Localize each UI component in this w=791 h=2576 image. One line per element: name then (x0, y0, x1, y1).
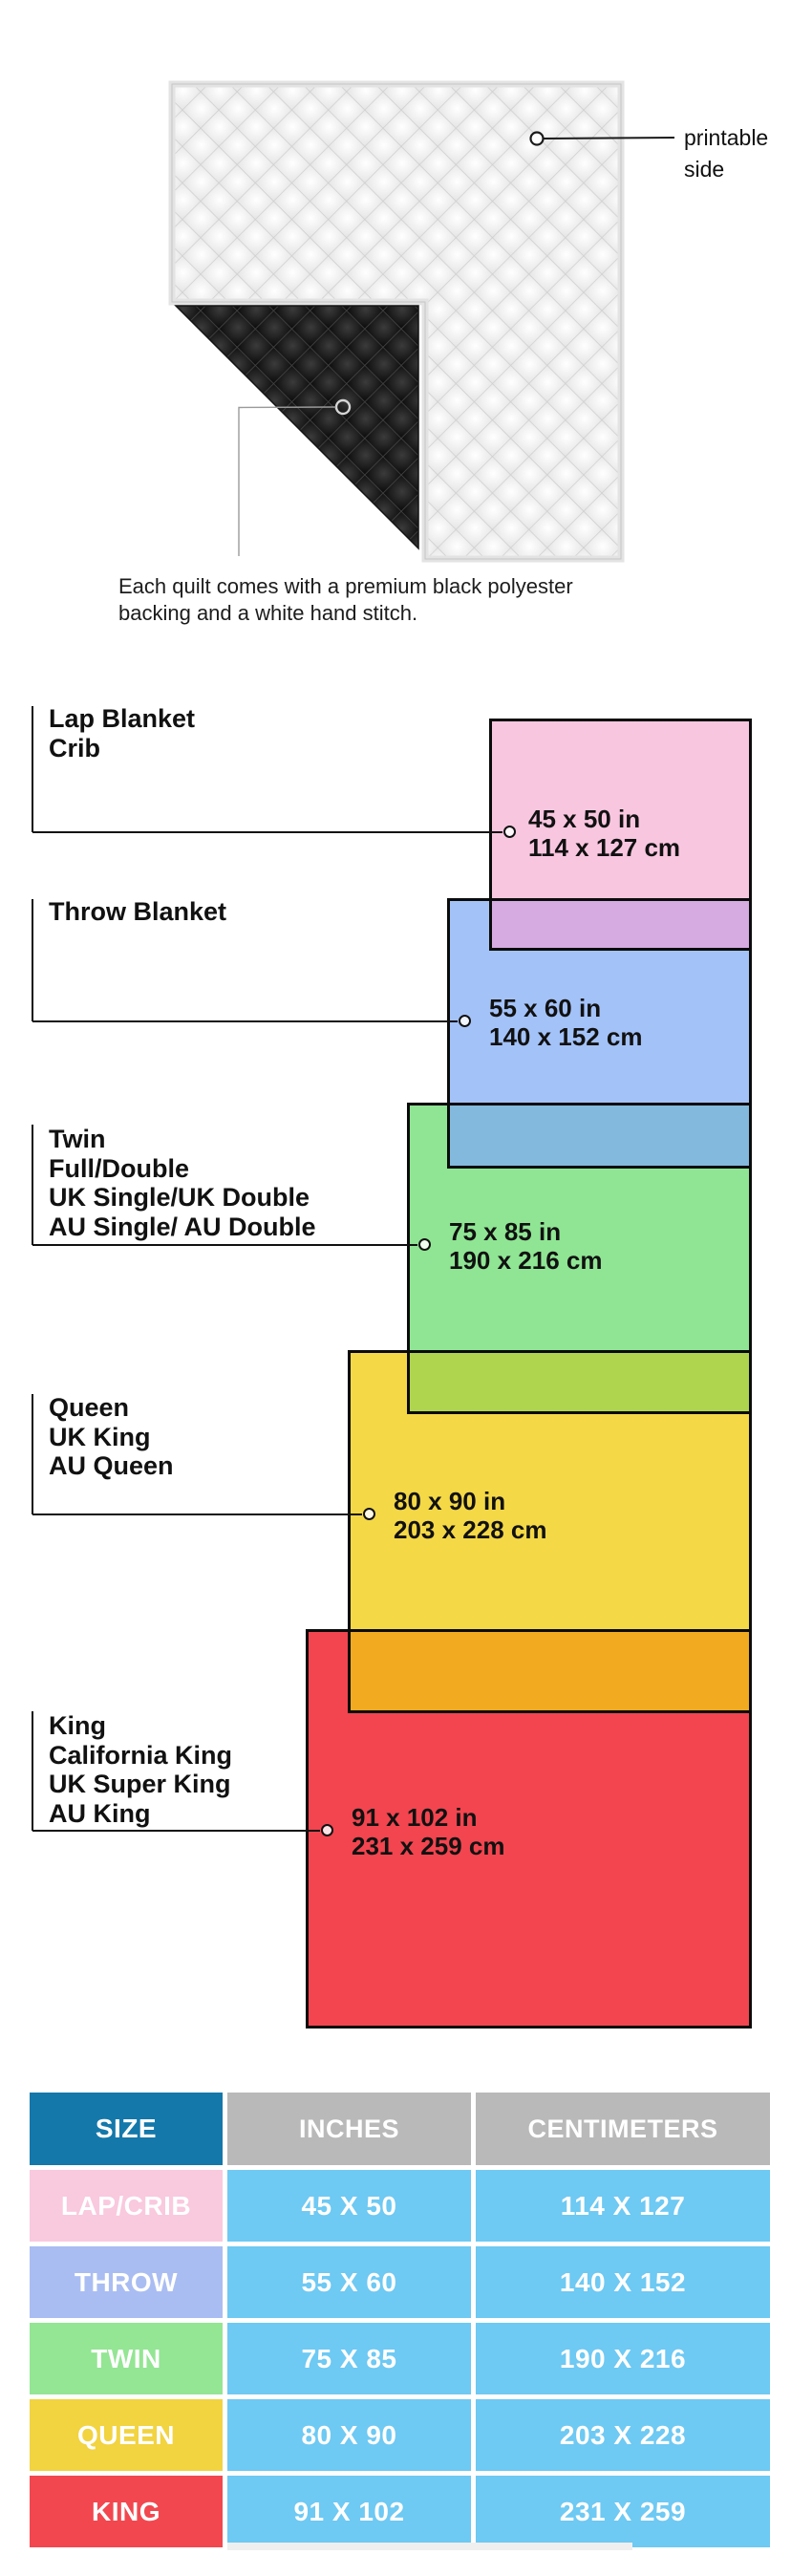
printable-leader-line (544, 138, 674, 139)
label-line: UK King (49, 1423, 174, 1452)
hero-caption-line2: backing and a white hand stitch. (118, 600, 573, 627)
dimensions-lap-crib: 45 x 50 in 114 x 127 cm (528, 805, 680, 862)
callout-line (32, 1830, 320, 1832)
quilt-size-infographic: printable side Each quilt comes with a p… (0, 0, 791, 2576)
label-line: Queen (49, 1393, 174, 1423)
size-table: SIZE INCHES CENTIMETERS LAP/CRIB 45 X 50… (30, 2093, 770, 2547)
callout-dot-icon (459, 1015, 471, 1027)
label-line: Lap Blanket (49, 704, 195, 734)
section-label-twin: Twin Full/Double UK Single/UK Double AU … (49, 1125, 316, 1241)
dimensions-throw: 55 x 60 in 140 x 152 cm (489, 995, 642, 1051)
table-cell: 75 X 85 (227, 2323, 471, 2394)
table-row-label: QUEEN (30, 2399, 223, 2471)
label-line: Twin (49, 1125, 316, 1154)
table-cell: 55 X 60 (227, 2246, 471, 2318)
table-row-label: KING (30, 2476, 223, 2547)
dim-inches: 75 x 85 in (449, 1218, 602, 1247)
label-line: King (49, 1711, 232, 1741)
callout-dot-icon (418, 1238, 431, 1251)
dimensions-twin: 75 x 85 in 190 x 216 cm (449, 1218, 602, 1275)
section-label-lap-crib: Lap Blanket Crib (49, 704, 195, 762)
quilt-black-backing (176, 306, 418, 548)
table-cell: 114 X 127 (476, 2170, 770, 2242)
callout-dot-icon (503, 826, 516, 838)
table-header-centimeters: CENTIMETERS (476, 2093, 770, 2165)
printable-side-label-line1: printable (684, 122, 768, 154)
table-cell: 91 X 102 (227, 2476, 471, 2547)
dim-cm: 190 x 216 cm (449, 1247, 602, 1276)
label-line: Crib (49, 734, 195, 763)
dim-cm: 140 x 152 cm (489, 1023, 642, 1052)
hero-caption-line1: Each quilt comes with a premium black po… (118, 573, 573, 600)
dim-inches: 45 x 50 in (528, 805, 680, 834)
table-shadow (227, 2543, 632, 2550)
section-label-queen: Queen UK King AU Queen (49, 1393, 174, 1481)
table-row-label: TWIN (30, 2323, 223, 2394)
label-line: AU Single/ AU Double (49, 1213, 316, 1242)
table-cell: 45 X 50 (227, 2170, 471, 2242)
dim-inches: 80 x 90 in (394, 1488, 546, 1516)
hero-caption: Each quilt comes with a premium black po… (118, 573, 573, 627)
dim-cm: 231 x 259 cm (352, 1833, 504, 1861)
callout-dot-icon (363, 1508, 375, 1520)
table-cell: 80 X 90 (227, 2399, 471, 2471)
dimensions-queen: 80 x 90 in 203 x 228 cm (394, 1488, 546, 1544)
label-line: UK Super King (49, 1770, 232, 1799)
callout-line (32, 1125, 33, 1245)
label-line: AU King (49, 1799, 232, 1829)
label-line: UK Single/UK Double (49, 1183, 316, 1213)
table-header-inches: INCHES (227, 2093, 471, 2165)
callout-line (32, 1244, 417, 1246)
section-label-throw: Throw Blanket (49, 897, 226, 927)
table-cell: 190 X 216 (476, 2323, 770, 2394)
printable-side-label: printable side (684, 122, 768, 185)
callout-dot-icon (321, 1824, 333, 1836)
callout-line (32, 1394, 33, 1514)
label-line: Full/Double (49, 1154, 316, 1184)
dim-inches: 91 x 102 in (352, 1804, 504, 1833)
table-row-label: THROW (30, 2246, 223, 2318)
section-label-king: King California King UK Super King AU Ki… (49, 1711, 232, 1828)
callout-line (32, 1513, 362, 1515)
callout-line (32, 899, 33, 1021)
label-line: Throw Blanket (49, 897, 226, 927)
dimensions-king: 91 x 102 in 231 x 259 cm (352, 1804, 504, 1860)
callout-line (32, 1711, 33, 1831)
table-row-label: LAP/CRIB (30, 2170, 223, 2242)
label-line: California King (49, 1741, 232, 1771)
printable-annotation-ring-icon (531, 133, 544, 145)
dim-cm: 203 x 228 cm (394, 1516, 546, 1545)
printable-side-label-line2: side (684, 154, 768, 185)
quilt-illustration (0, 0, 791, 669)
dim-cm: 114 x 127 cm (528, 834, 680, 863)
callout-line (32, 831, 502, 833)
dim-inches: 55 x 60 in (489, 995, 642, 1023)
table-cell: 140 X 152 (476, 2246, 770, 2318)
table-header-size: SIZE (30, 2093, 223, 2165)
table-cell: 231 X 259 (476, 2476, 770, 2547)
callout-line (32, 1020, 458, 1022)
label-line: AU Queen (49, 1451, 174, 1481)
table-cell: 203 X 228 (476, 2399, 770, 2471)
callout-line (32, 706, 33, 832)
